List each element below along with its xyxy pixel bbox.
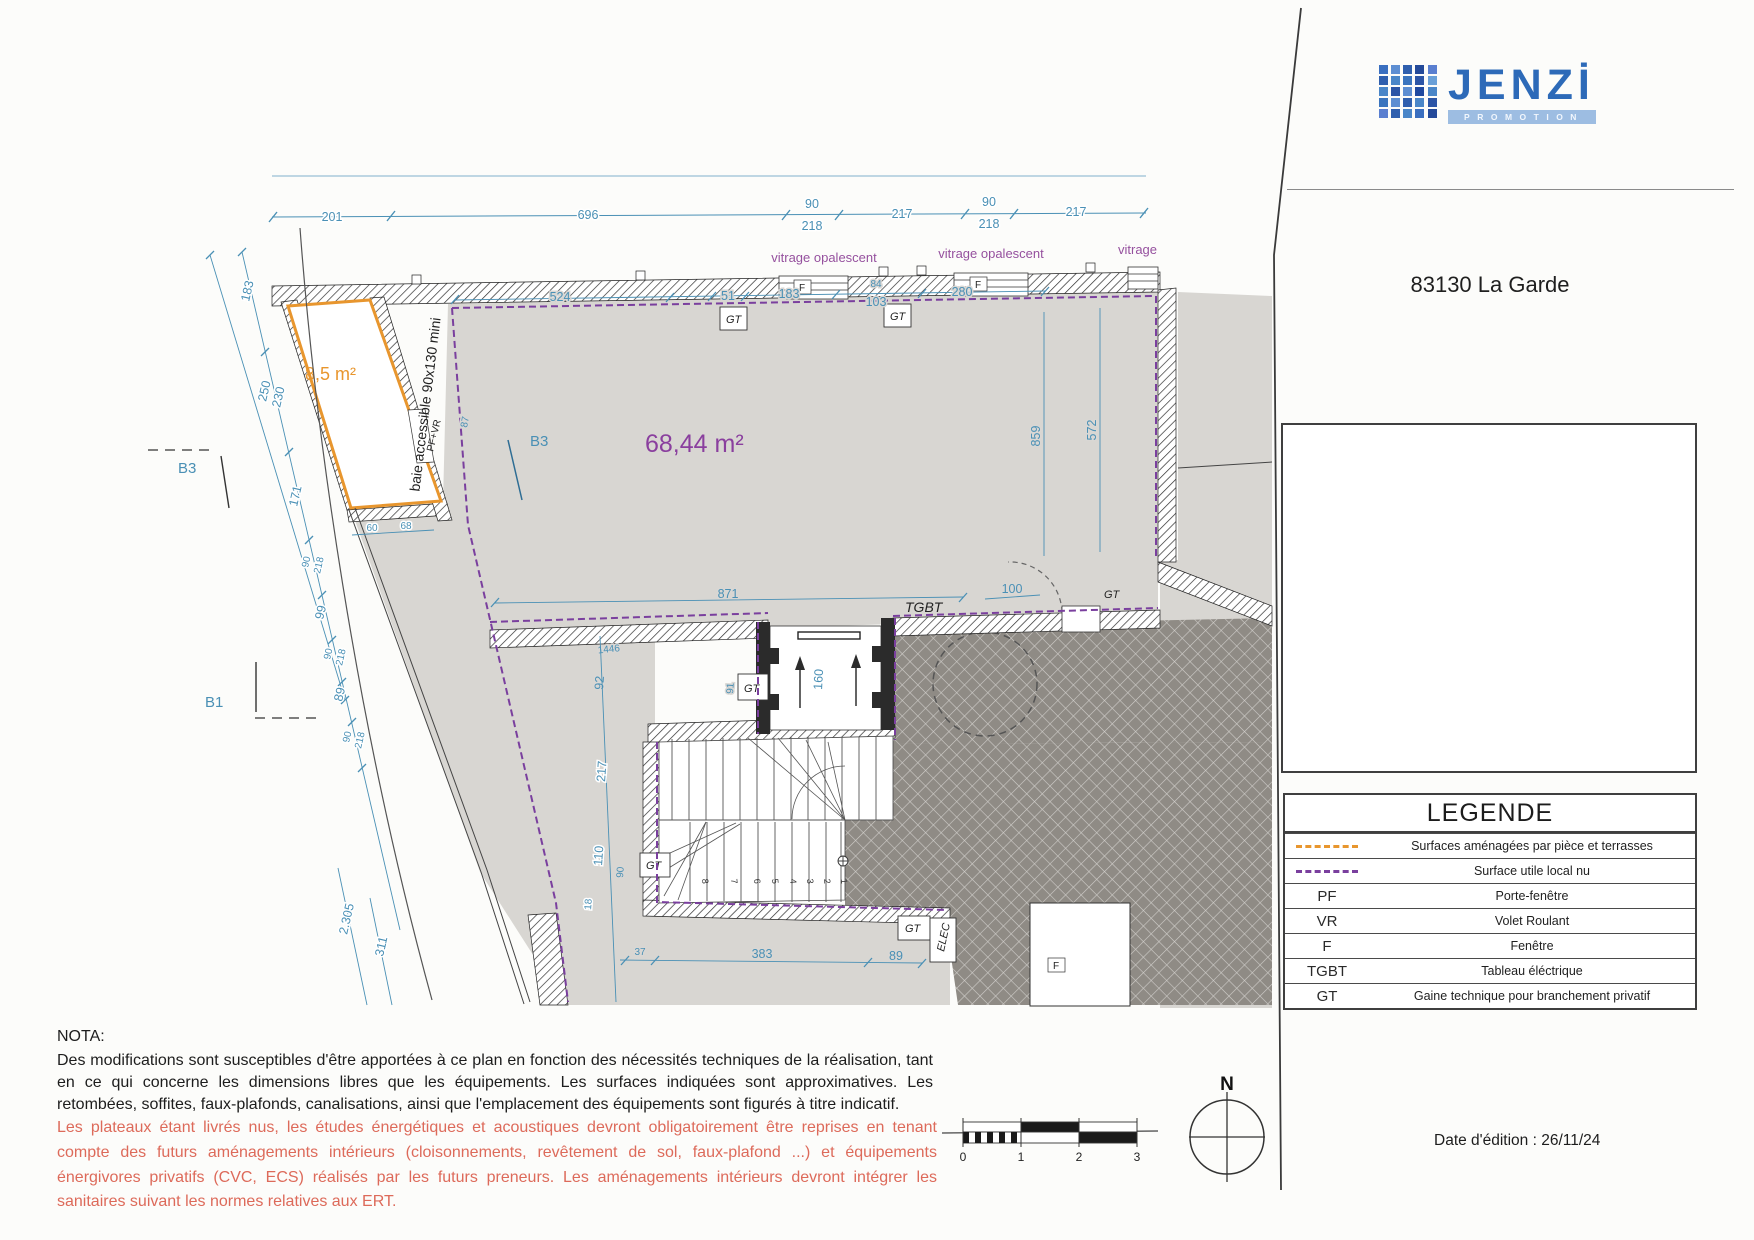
legend-row: GT Gaine technique pour branchement priv… (1285, 983, 1695, 1008)
dim-label: 84 (870, 279, 882, 290)
stair-number: 8 (700, 878, 710, 884)
dim-label: 90 (322, 647, 335, 661)
legend-label: Gaine technique pour branchement privati… (1369, 989, 1695, 1003)
legend-row: Surface utile local nu (1285, 858, 1695, 883)
legend-row: F Fenêtre (1285, 933, 1695, 958)
header-logo: JENZİ PROMOTION (1378, 64, 1596, 124)
dim-label: 90 (982, 195, 996, 209)
gt-label: GT (890, 311, 907, 323)
legend-row: VR Volet Roulant (1285, 908, 1695, 933)
legend-label: Porte-fenêtre (1369, 889, 1695, 903)
window-label: F (1053, 961, 1059, 972)
dim-label: 871 (718, 587, 739, 601)
orange-dash-swatch (1296, 845, 1358, 848)
zone-label: B3 (530, 433, 548, 450)
top-dimension-chain: 201 696 90 218 217 90 218 217 vitrage op… (269, 176, 1157, 265)
dim-label: 311 (372, 935, 390, 958)
north-arrow: N (1189, 1074, 1265, 1182)
stair-number: 2 (822, 878, 832, 884)
dim-label: 160 (811, 669, 826, 691)
dim-label: 218 (979, 217, 1000, 231)
scale-tick: 2 (1076, 1150, 1083, 1164)
glazing-label: vitrage (1118, 242, 1157, 257)
legend-label: Tableau éléctrique (1369, 964, 1695, 978)
legend-key: GT (1285, 988, 1369, 1005)
dim-label: 572 (1085, 420, 1099, 441)
gt-label: GT (726, 314, 743, 326)
scale-bar: 0 1 2 3 (942, 1118, 1158, 1164)
dim-label: 18 (583, 898, 595, 910)
gt-label: GT (646, 860, 663, 872)
stair-number: 6 (752, 878, 762, 884)
dim-label: 110 (591, 845, 606, 866)
purple-dash-swatch (1296, 870, 1358, 873)
legend-label: Fenêtre (1369, 939, 1695, 953)
section-label: B1 (205, 694, 223, 711)
dim-label: 92 (592, 675, 607, 690)
brand-tagline: PROMOTION (1448, 110, 1596, 124)
dim-label: 90 (805, 197, 819, 211)
dim-label: 89 (889, 949, 903, 963)
stair-number: 7 (729, 878, 739, 884)
nota-body: Des modifications sont susceptibles d'êt… (57, 1050, 933, 1116)
tgbt-label: TGBT (905, 599, 944, 615)
dim-label: 68 (400, 521, 412, 532)
window-label: F (975, 280, 981, 291)
dim-label: 171 (286, 484, 304, 508)
stair-number: 5 (770, 878, 780, 884)
scale-tick: 3 (1134, 1150, 1141, 1164)
gt-label: GT (905, 923, 922, 935)
dim-label: 383 (752, 947, 773, 961)
legend-key: VR (1285, 913, 1369, 930)
dim-label: 217 (1066, 205, 1087, 219)
legend-label: Surface utile local nu (1369, 864, 1695, 878)
glazing-label: vitrage opalescent (771, 250, 877, 265)
legend-label: Surfaces aménagées par pièce et terrasse… (1369, 839, 1695, 853)
dim-label: 91 (725, 682, 737, 694)
edition-date: Date d'édition : 26/11/24 (1434, 1132, 1600, 1150)
dim-label: 696 (578, 208, 599, 222)
dim-label: 90 (300, 555, 313, 569)
dim-label: 217 (892, 207, 913, 221)
legend-row: TGBT Tableau éléctrique (1285, 958, 1695, 983)
legend-key: PF (1285, 888, 1369, 905)
dim-label: 217 (594, 760, 609, 782)
legend-title: LEGENDE (1285, 795, 1695, 833)
dim-label: 60 (366, 523, 378, 534)
legend-label: Volet Roulant (1369, 914, 1695, 928)
dim-label: 103 (866, 295, 887, 309)
reperage-panel (1281, 423, 1697, 773)
lower-right-room: F (1030, 903, 1130, 1006)
dim-label: 524 (550, 290, 571, 304)
legend-row: Surfaces aménagées par pièce et terrasse… (1285, 833, 1695, 858)
dim-label: 183 (238, 279, 256, 303)
glazing-label: vitrage opalescent (938, 246, 1044, 261)
legend-table: LEGENDE Surfaces aménagées par pièce et … (1283, 793, 1697, 1010)
dim-label: 2.305 (336, 902, 357, 936)
legend-row: PF Porte-fenêtre (1285, 883, 1695, 908)
gt-label: GT (1104, 589, 1121, 601)
dim-label: 37 (634, 947, 646, 958)
dim-label: 90 (615, 866, 627, 878)
stair-number: 3 (805, 878, 815, 884)
stair-number: 4 (788, 878, 798, 884)
legend-key: F (1285, 938, 1369, 955)
project-address: 83130 La Garde (1330, 272, 1650, 298)
dim-label: 90 (341, 730, 354, 744)
warning-text: Les plateaux étant livrés nus, les étude… (57, 1116, 937, 1215)
brand-name: JENZİ (1448, 64, 1596, 107)
dim-label: 218 (802, 219, 823, 233)
dim-label: 51 (721, 289, 735, 303)
dim-label: 218 (334, 648, 349, 667)
dim-label: 99 (312, 604, 329, 621)
header-rule (1287, 189, 1734, 190)
window-label: F (799, 283, 805, 294)
main-area-label: 68,44 m² (645, 430, 744, 458)
pixel-grid-logo-icon (1378, 64, 1442, 120)
scanned-plan-page: F F 8,5 m² baie accessible 90x130 mini P… (0, 0, 1754, 1240)
terrace-8m2: 8,5 m² baie accessible 90x130 mini PF+VR (288, 300, 444, 508)
dim-label: 100 (1002, 582, 1023, 596)
section-label: B3 (178, 460, 196, 477)
dim-label: 218 (312, 556, 327, 575)
stair-number: 1 (839, 878, 849, 884)
dim-label: 859 (1029, 426, 1043, 447)
scale-tick: 0 (960, 1150, 967, 1164)
scale-tick: 1 (1018, 1150, 1025, 1164)
nota-title: NOTA: (57, 1026, 933, 1048)
north-label: N (1220, 1074, 1234, 1095)
legend-key: TGBT (1285, 963, 1369, 980)
dim-label: 183 (779, 287, 800, 301)
dim-label: 218 (353, 731, 368, 750)
nota-block: NOTA: Des modifications sont susceptible… (57, 1026, 933, 1116)
dim-label: 280 (952, 285, 973, 299)
dim-label: 201 (322, 210, 343, 224)
